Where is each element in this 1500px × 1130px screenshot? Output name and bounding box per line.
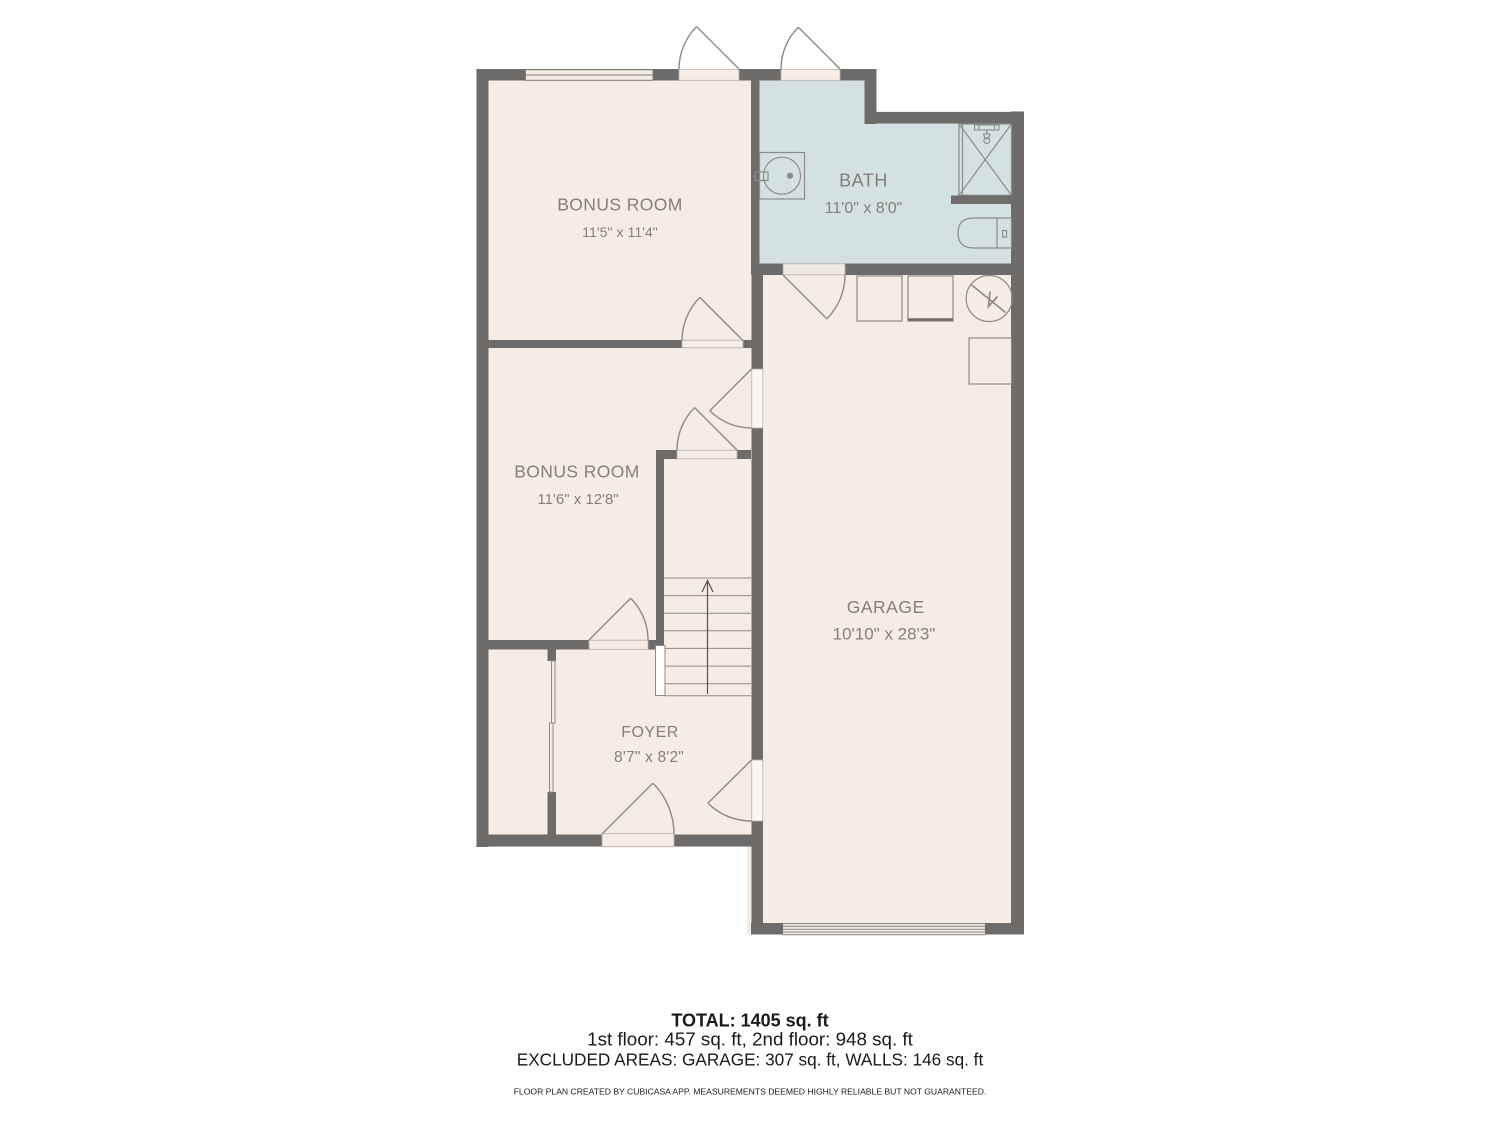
svg-text:TOTAL: 1405 sq. ft: TOTAL: 1405 sq. ft	[671, 1011, 828, 1031]
svg-text:8'7" x 8'2": 8'7" x 8'2"	[614, 749, 684, 766]
svg-text:11'0" x 8'0": 11'0" x 8'0"	[825, 200, 903, 217]
svg-text:EXCLUDED AREAS: GARAGE: 307 sq: EXCLUDED AREAS: GARAGE: 307 sq. ft, WALL…	[517, 1050, 984, 1070]
svg-text:BONUS ROOM: BONUS ROOM	[557, 195, 683, 215]
svg-text:FOYER: FOYER	[621, 724, 679, 741]
svg-text:1st floor: 457 sq. ft, 2nd flo: 1st floor: 457 sq. ft, 2nd floor: 948 sq…	[587, 1029, 914, 1050]
svg-text:BONUS ROOM: BONUS ROOM	[514, 462, 640, 482]
svg-text:11'5" x 11'4": 11'5" x 11'4"	[582, 225, 658, 241]
svg-text:11'6" x 12'8": 11'6" x 12'8"	[537, 491, 618, 508]
svg-text:10'10" x 28'3": 10'10" x 28'3"	[833, 625, 936, 644]
svg-text:FLOOR PLAN CREATED BY CUBICASA: FLOOR PLAN CREATED BY CUBICASA APP. MEAS…	[514, 1087, 987, 1097]
svg-text:BATH: BATH	[839, 171, 888, 191]
svg-text:GARAGE: GARAGE	[847, 597, 925, 617]
